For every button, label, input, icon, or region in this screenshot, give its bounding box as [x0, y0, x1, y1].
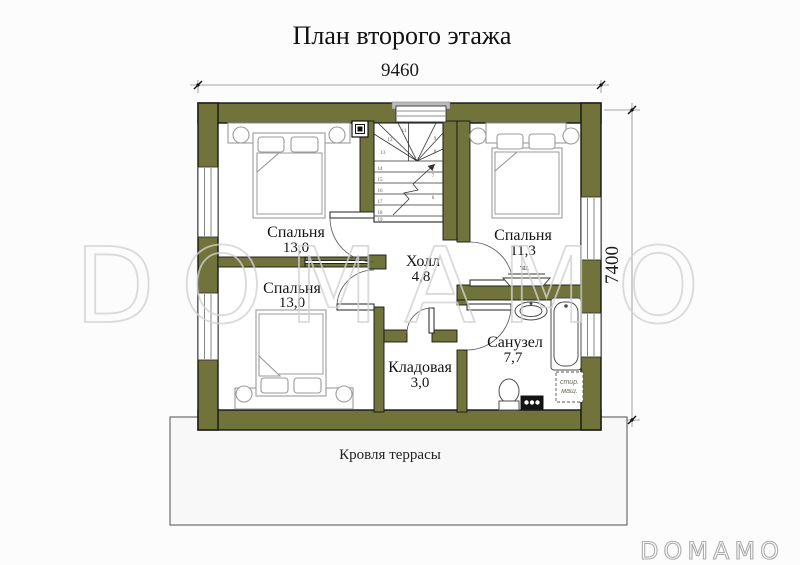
dimension-width: 9460	[190, 60, 609, 93]
dimension-width-value: 9460	[381, 60, 419, 81]
svg-text:7,7: 7,7	[504, 350, 523, 366]
watermark: DOMAMO	[75, 225, 725, 347]
electrical-panel-icon	[352, 121, 368, 137]
stairwell-wall-right	[443, 121, 457, 240]
step-number: 14	[378, 167, 384, 172]
brand-logo: DOMAMO	[640, 537, 784, 565]
step-number: 15	[378, 178, 384, 183]
terrace-roof-label: Кровля террасы	[339, 447, 441, 463]
step-number: 16	[378, 189, 384, 194]
window-top-stairwell	[392, 102, 450, 122]
svg-text:3,0: 3,0	[411, 375, 430, 391]
step-number: 12	[388, 138, 394, 143]
bathroom-west-wall-lower	[457, 350, 467, 412]
step-number: 11	[402, 129, 407, 134]
washing-machine-icon: стир. маш.	[556, 372, 583, 402]
washing-machine-label-2: маш.	[561, 388, 578, 395]
svg-text:Кладовая: Кладовая	[388, 359, 452, 376]
bedroom-right-west-wall	[457, 121, 470, 242]
terrace-roof: Кровля террасы	[170, 417, 627, 525]
step-number: 18	[378, 211, 384, 216]
step-number: 19	[378, 218, 384, 223]
toilet-icon	[499, 379, 519, 410]
exterior-wall-bottom	[198, 410, 601, 430]
staircase: 11 12 13 14 15 16 17 18 19 9 8 7 6	[374, 123, 443, 223]
step-number: 13	[381, 151, 387, 156]
washing-machine-label-1: стир.	[560, 379, 579, 386]
step-number: 17	[378, 200, 384, 205]
page-title: План второго этажа	[293, 21, 512, 50]
floor-plan: План второго этажа 9460 7400 Кровля терр…	[0, 0, 800, 565]
heated-towel-unit-icon	[521, 396, 543, 409]
